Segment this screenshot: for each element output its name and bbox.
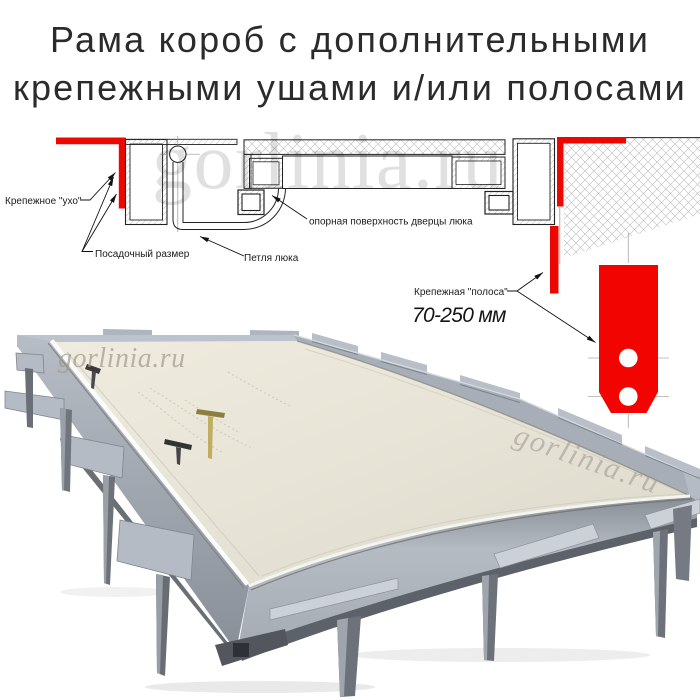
svg-text:Крепежная "полоса": Крепежная "полоса" <box>414 287 508 298</box>
svg-text:опорная поверхность дверцы люк: опорная поверхность дверцы люка <box>309 217 473 228</box>
svg-text:Петля люка: Петля люка <box>244 253 299 264</box>
svg-text:Крепежное "ухо": Крепежное "ухо" <box>5 196 82 207</box>
svg-text:gorlinia.ru: gorlinia.ru <box>58 343 186 374</box>
svg-text:70-250 мм: 70-250 мм <box>412 304 506 327</box>
svg-text:Посадочный размер: Посадочный размер <box>95 249 190 260</box>
svg-text:gorlinia.ru: gorlinia.ru <box>152 118 504 206</box>
